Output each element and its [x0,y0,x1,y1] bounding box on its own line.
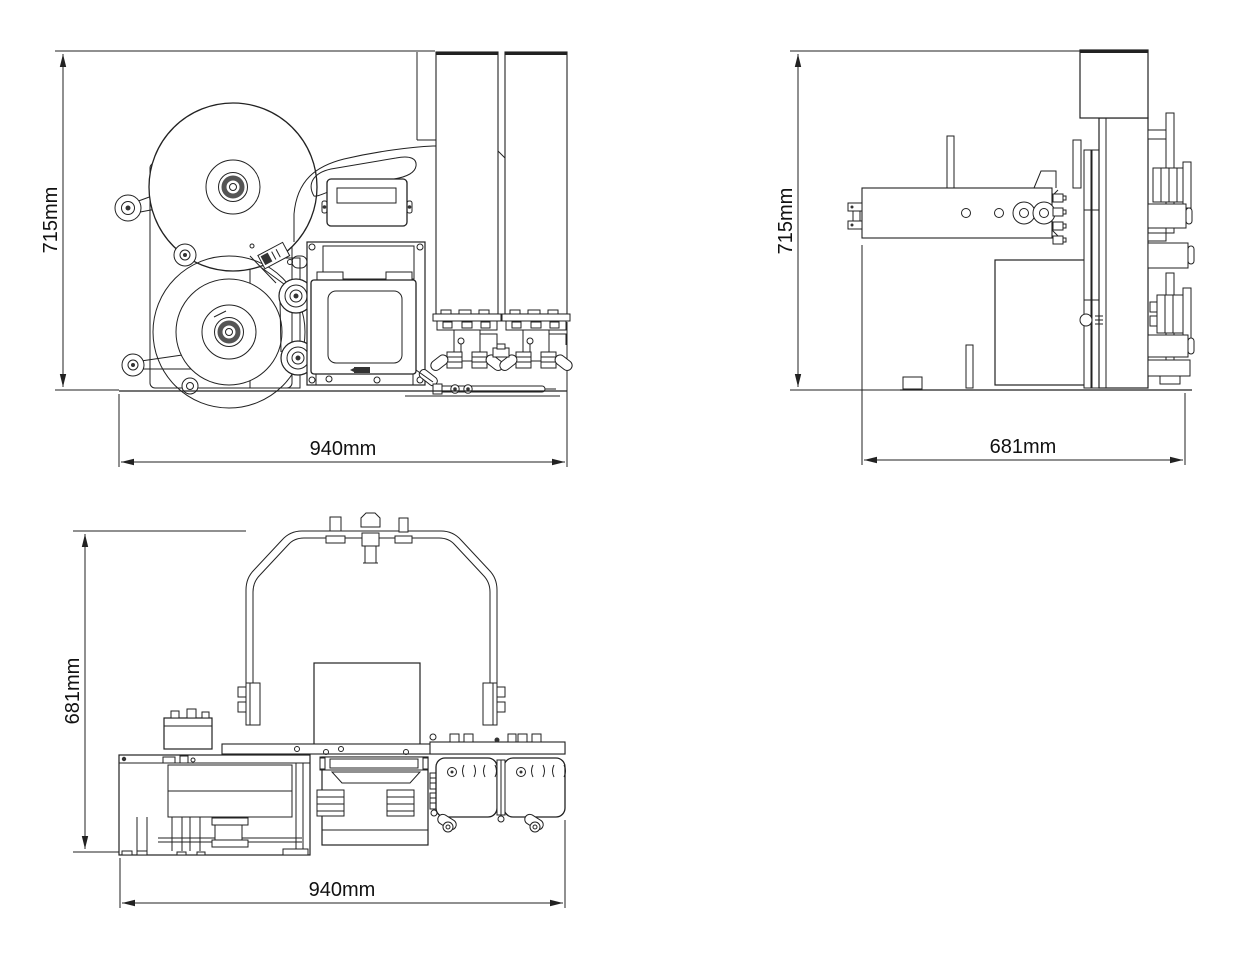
motor-box-top [164,709,212,749]
top-depth-label: 681mm [62,658,84,725]
frame-plate [1092,150,1099,388]
lower-reel-shaft [1148,288,1194,384]
mounting-arm [848,171,1066,244]
frame-plate [1084,150,1091,388]
label-supply-reel [149,103,317,271]
side-height-label: 715mm [775,188,797,255]
top-view: 681mm 940mm [62,513,566,908]
print-engine [307,242,442,393]
upper-reel-shaft [1148,162,1194,268]
brand-logo [354,367,370,373]
top-machine [119,513,566,855]
printer-unit-top [317,757,428,845]
control-panel [322,179,412,226]
housing-box [995,260,1085,385]
side-machine [848,50,1194,390]
side-width-label: 681mm [990,436,1057,458]
front-view: 715mm 940mm [40,51,574,467]
column-cap [1080,50,1148,118]
applicator-columns [429,52,574,372]
applicator-pad-2 [504,758,565,817]
front-width-label: 940mm [310,438,377,460]
print-engine-top [314,663,420,745]
front-height-label: 715mm [40,187,62,254]
applicator-column-2 [505,52,567,314]
drawing-svg: 715mm 940mm [0,0,1245,960]
applicator-pad-1 [436,758,497,817]
applicator-column-1 [436,52,498,314]
front-machine [115,52,574,408]
rewind-reel [153,256,305,408]
label-unit-top [119,755,310,855]
top-width-label: 940mm [309,879,376,901]
side-view: 715mm 681mm [775,50,1194,465]
slide-rod [433,384,556,394]
technical-drawing: 715mm 940mm [0,0,1245,960]
sensor-pin [947,136,954,188]
applicator-pads-top [436,758,566,832]
